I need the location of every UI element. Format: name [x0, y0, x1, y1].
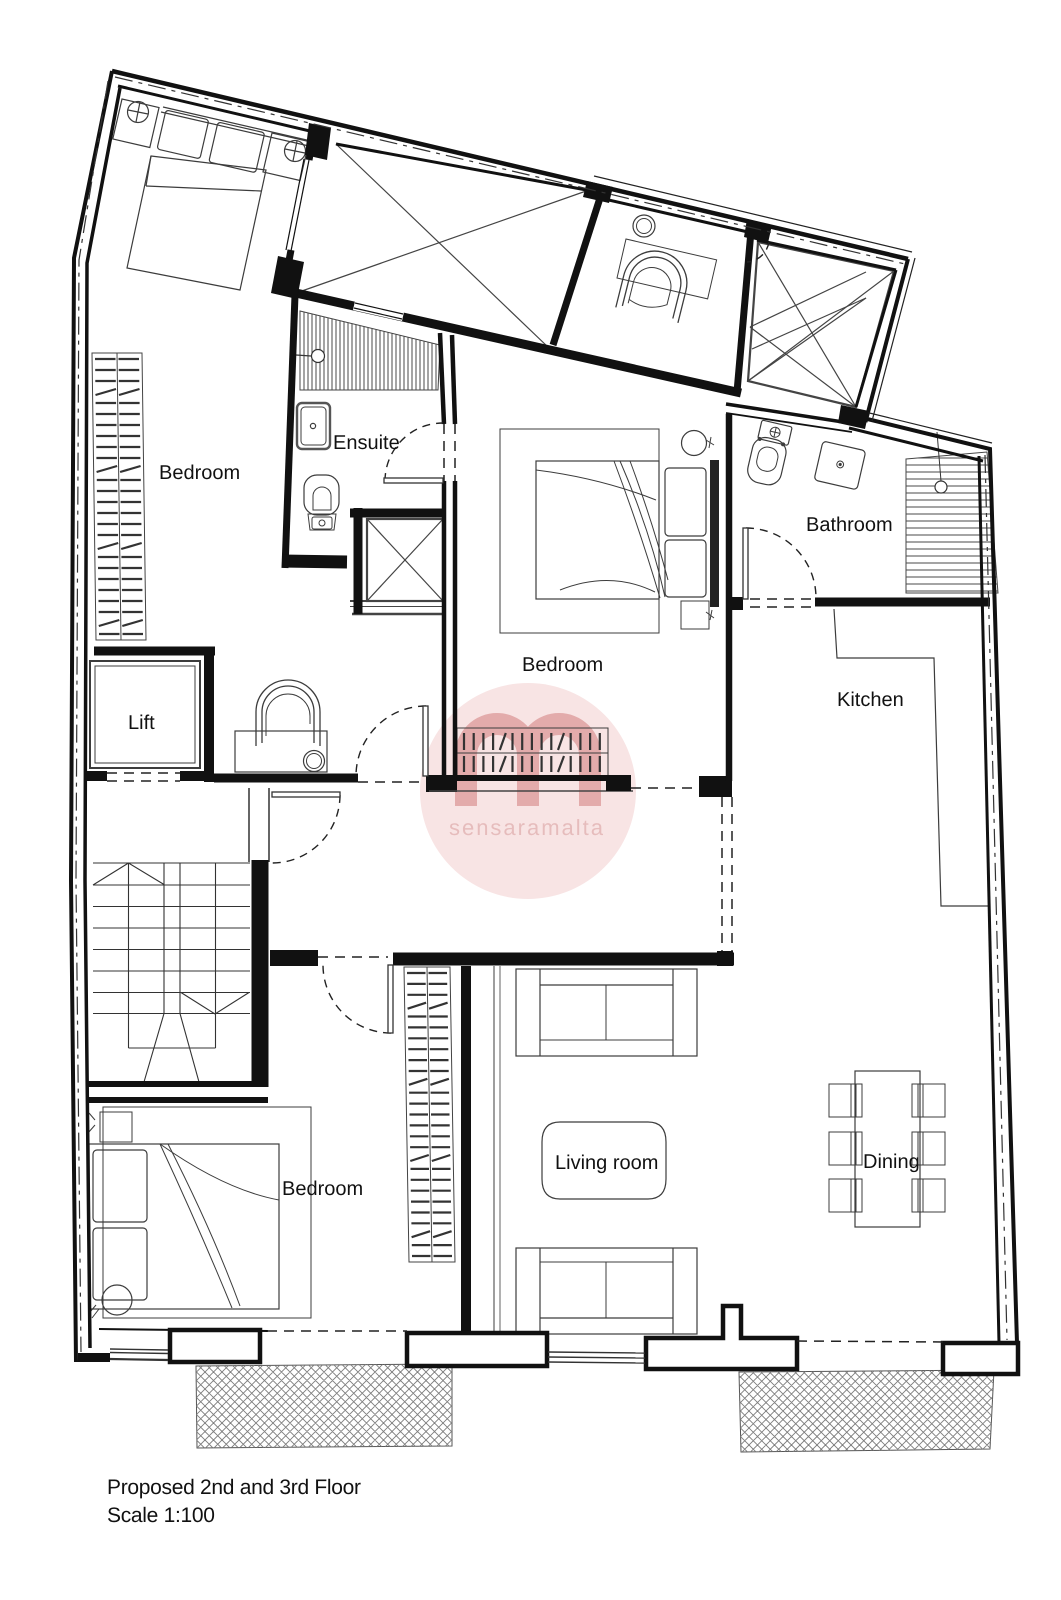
svg-text:Kitchen: Kitchen [837, 689, 904, 711]
svg-text:Living room: Living room [555, 1152, 658, 1174]
svg-text:Dining: Dining [863, 1151, 920, 1173]
svg-text:Ensuite: Ensuite [333, 432, 400, 454]
svg-text:Bathroom: Bathroom [806, 514, 893, 536]
svg-text:Bedroom: Bedroom [522, 654, 603, 676]
svg-text:Lift: Lift [128, 712, 155, 734]
svg-text:Bedroom: Bedroom [282, 1178, 363, 1200]
svg-text:sensaramalta: sensaramalta [449, 815, 605, 840]
svg-text:Proposed 2nd and 3rd Floor: Proposed 2nd and 3rd Floor [107, 1476, 361, 1499]
svg-text:Bedroom: Bedroom [159, 462, 240, 484]
svg-text:Scale 1:100: Scale 1:100 [107, 1504, 215, 1527]
